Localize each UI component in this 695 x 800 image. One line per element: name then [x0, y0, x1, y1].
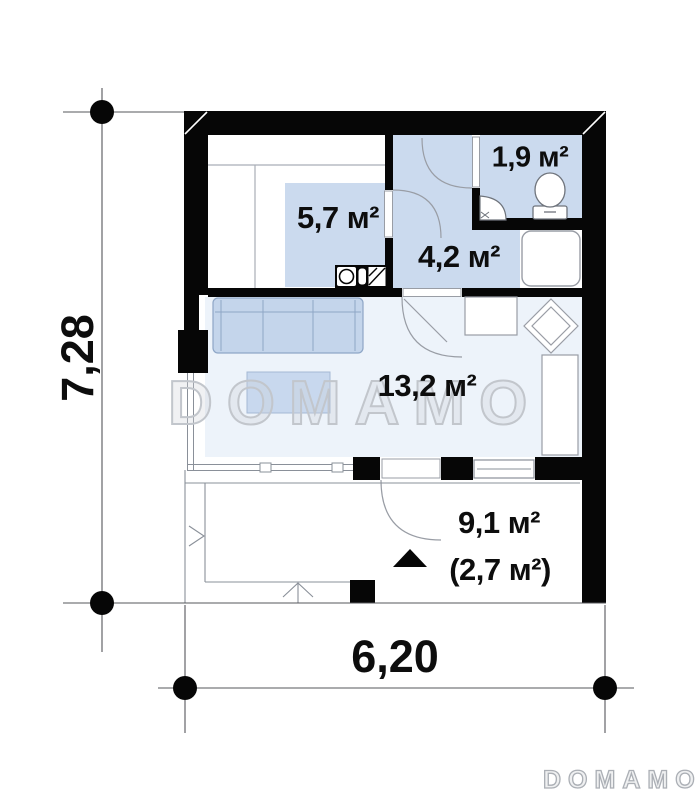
- dimension-label-width: 6,20: [351, 631, 439, 683]
- kitchen-hob-icon: [337, 267, 386, 286]
- room-label-wardrobe: 5,7 м²: [297, 200, 379, 236]
- door-swing-icon: [381, 138, 472, 540]
- room-label-terrace: 9,1 м²: [458, 505, 540, 541]
- sofa-icon: [213, 298, 363, 353]
- room-label-hallway: 4,2 м²: [418, 239, 500, 275]
- entrance-arrow-icon: [393, 549, 427, 567]
- dimension-label-height: 7,28: [52, 314, 104, 402]
- room-label-living: 13,2 м²: [378, 368, 477, 404]
- room-label-bathroom: 1,9 м²: [492, 142, 568, 175]
- corner-break-icon: [185, 112, 605, 134]
- room-label-terrace-covered: (2,7 м²): [449, 552, 551, 588]
- window-bottom-icon: [474, 460, 534, 478]
- shower-tray-icon: [522, 231, 580, 286]
- floor-plan-canvas: DOMAMO DOMAMO 5,7 м² 1,9 м² 4,2 м² 13,2 …: [0, 0, 695, 800]
- corner-cabinet-icon: [524, 299, 578, 353]
- toilet-icon: [533, 173, 567, 219]
- watermark-center: DOMAMO: [168, 368, 541, 439]
- corner-sink-icon: [480, 196, 506, 220]
- watermark-footer-logo: DOMAMO: [543, 766, 695, 795]
